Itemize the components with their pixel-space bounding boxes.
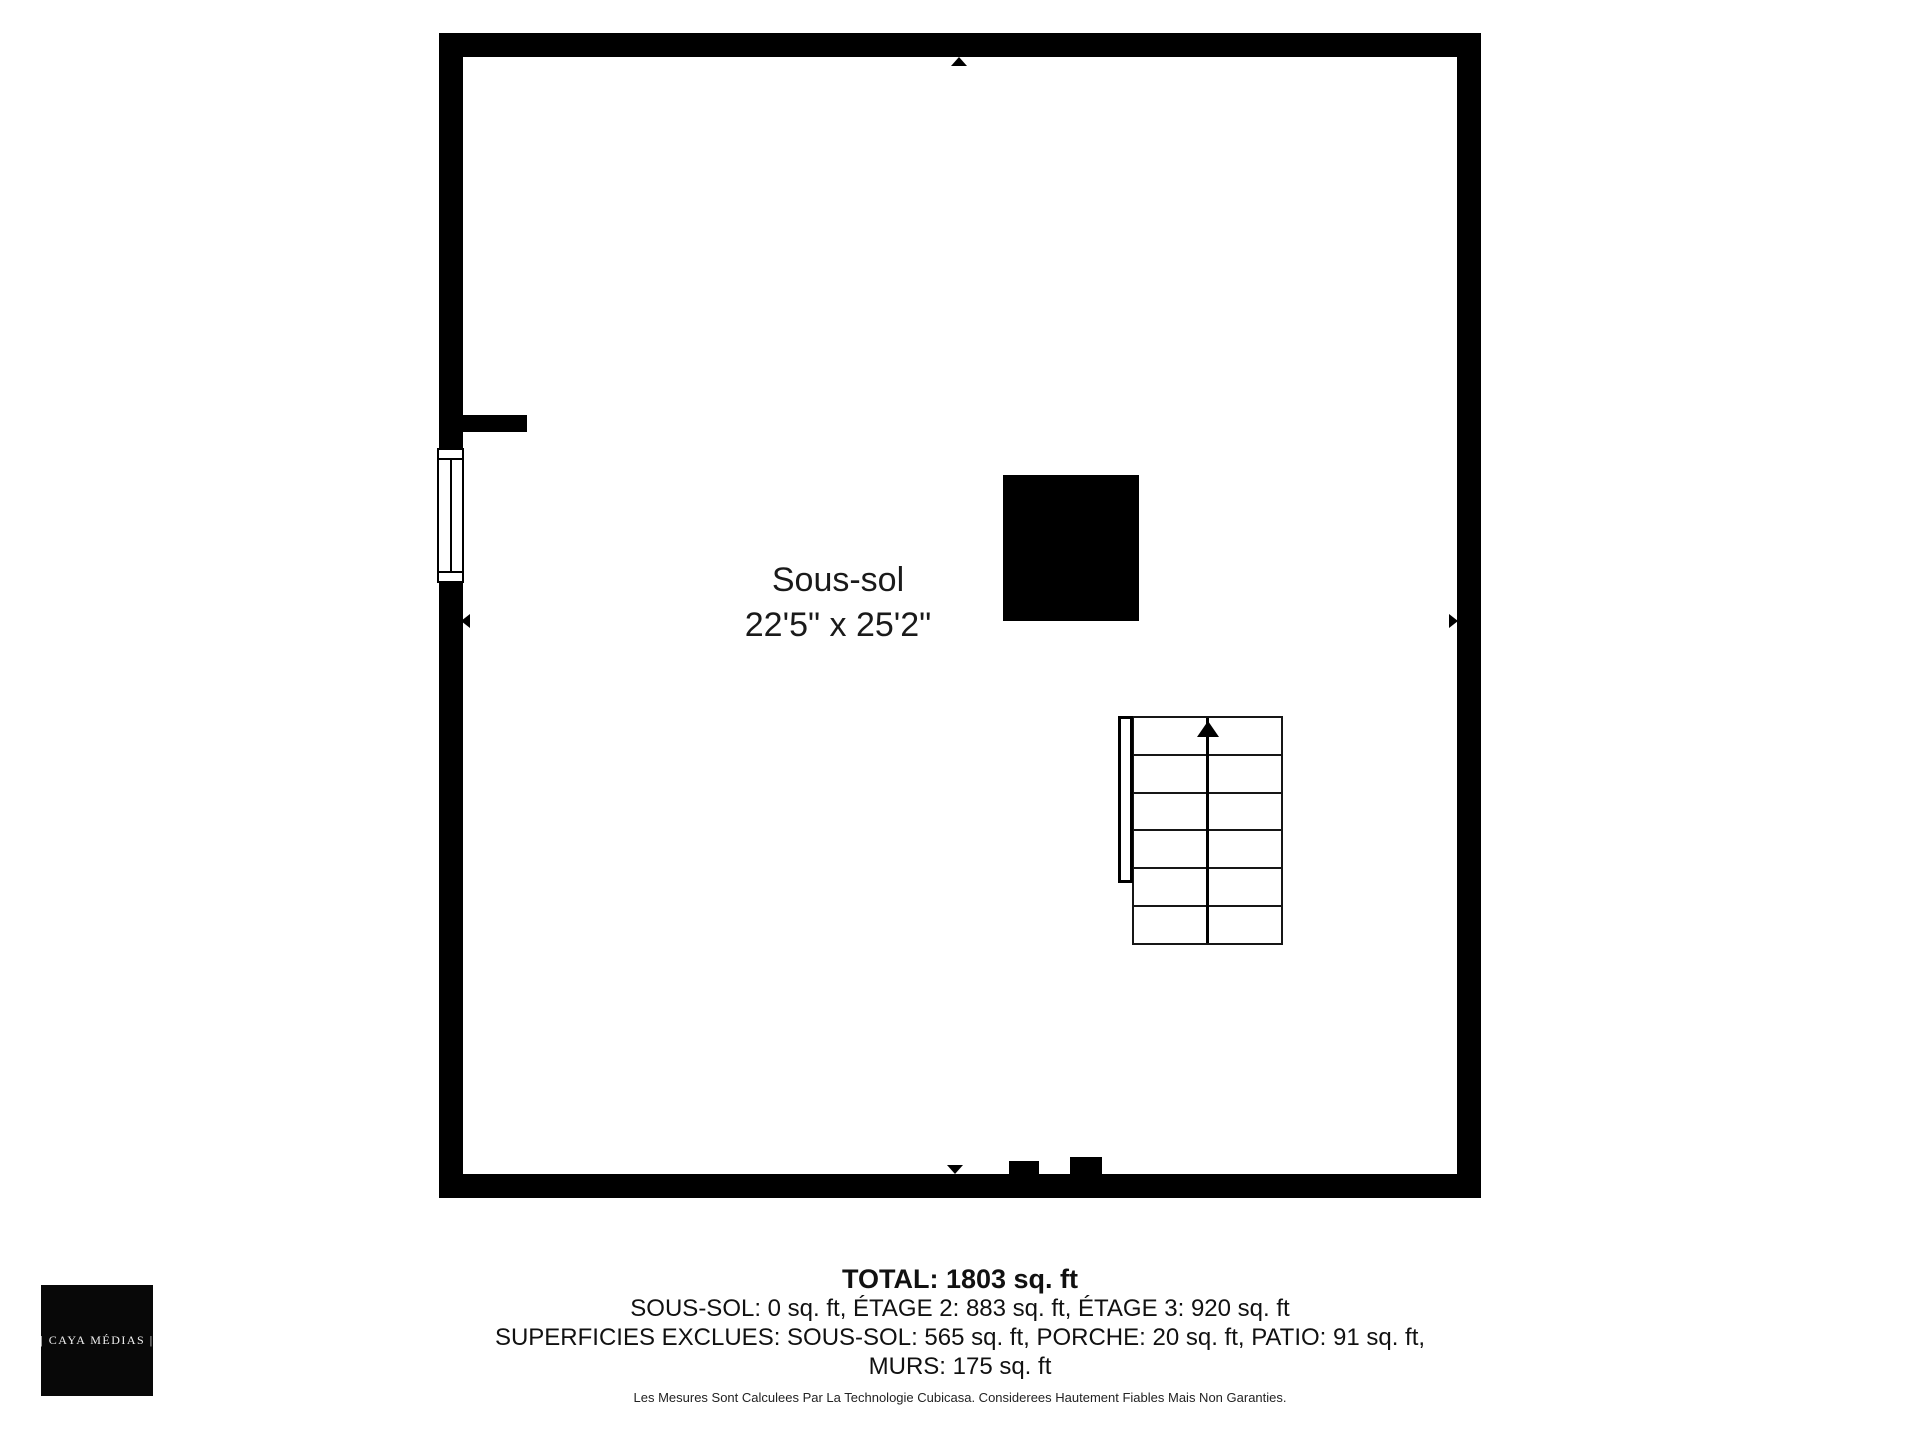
caya-medias-logo: | CAYA MÉDIAS |: [41, 1285, 153, 1396]
window-frame-line: [439, 571, 462, 573]
bottom-wall-stub: [1009, 1161, 1039, 1177]
excluded-areas-line-1: SUPERFICIES EXCLUES: SOUS-SOL: 565 sq. f…: [0, 1323, 1920, 1352]
staircase: [1132, 716, 1283, 945]
stairs-up-arrow-icon: [1197, 721, 1219, 737]
stair-railing: [1118, 716, 1133, 883]
stairs-walk-line: [1206, 718, 1209, 943]
window: [437, 448, 464, 583]
interior-wall-stub: [458, 415, 527, 432]
room-label: Sous-sol 22'5" x 25'2": [663, 558, 1013, 648]
room-dimensions: 22'5" x 25'2": [663, 603, 1013, 648]
room-name: Sous-sol: [663, 558, 1013, 603]
total-area-line: TOTAL: 1803 sq. ft: [0, 1264, 1920, 1294]
measurement-disclaimer: Les Mesures Sont Calculees Par La Techno…: [0, 1390, 1920, 1405]
window-glass-line: [450, 460, 452, 571]
excluded-areas-line-2: MURS: 175 sq. ft: [0, 1352, 1920, 1381]
area-summary: TOTAL: 1803 sq. ft SOUS-SOL: 0 sq. ft, É…: [0, 1264, 1920, 1381]
extent-marker-right-icon: [1449, 614, 1458, 628]
floor-areas-line: SOUS-SOL: 0 sq. ft, ÉTAGE 2: 883 sq. ft,…: [0, 1294, 1920, 1323]
bottom-wall-stub: [1070, 1157, 1102, 1177]
extent-marker-down-icon: [947, 1165, 963, 1174]
structural-column: [1003, 475, 1139, 621]
extent-marker-up-icon: [951, 57, 967, 66]
logo-text: | CAYA MÉDIAS |: [40, 1333, 153, 1348]
extent-marker-left-icon: [461, 614, 470, 628]
